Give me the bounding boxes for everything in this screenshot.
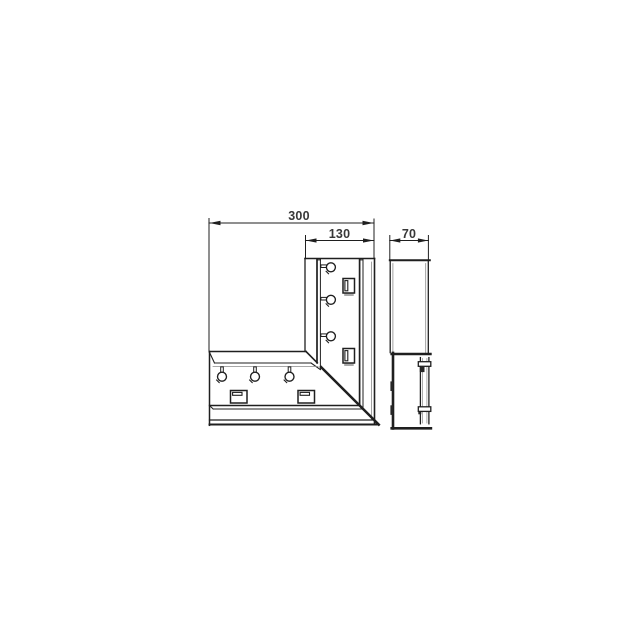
rail-clip-bar (418, 362, 431, 367)
flange-left-bevel (210, 406, 213, 409)
pin-head (326, 263, 335, 272)
retaining-pins-vertical (321, 263, 336, 343)
dimension-label-overall-length: 300 (288, 209, 309, 223)
retaining-pin (321, 263, 336, 274)
mounting-clip (343, 279, 355, 297)
dimension-label-depth: 70 (402, 227, 416, 241)
front-view (210, 259, 379, 426)
arrowhead-right (363, 238, 374, 242)
retaining-pin (321, 295, 336, 306)
retaining-pin (217, 367, 227, 383)
clip-slot (233, 392, 242, 395)
mounting-clips-horizontal (231, 391, 315, 404)
arrowhead-right (363, 221, 374, 225)
vertical-arm (305, 259, 375, 423)
pin-head (251, 372, 260, 381)
pin-stem (221, 367, 224, 372)
horizontal-arm-top-flange (210, 352, 321, 370)
pin-stem (321, 265, 327, 268)
pin-head (285, 372, 294, 381)
drawing-canvas: 300 130 70 (0, 0, 640, 640)
mounting-clip (298, 391, 315, 404)
dimension-depth: 70 (390, 227, 429, 260)
clip-slot (345, 351, 348, 361)
arrowhead-left (390, 238, 400, 242)
arrowhead-left (209, 221, 220, 225)
retaining-pin (321, 332, 336, 343)
retaining-pin (250, 367, 260, 383)
arrowhead-right (418, 238, 428, 242)
pin-stem (321, 334, 327, 337)
side-view-rail (418, 358, 431, 424)
dimension-arm-width: 130 (306, 227, 375, 258)
flange-corner-chamfer-outer (306, 352, 317, 363)
rail-clip-block (420, 367, 425, 372)
retaining-pin (284, 367, 294, 383)
rail-clip-bar (418, 407, 431, 412)
pin-stem (321, 297, 327, 300)
vertical-arm-left-flange (317, 260, 320, 370)
pin-head (326, 332, 335, 341)
side-view-lower-section (390, 353, 431, 429)
pin-stem (288, 367, 291, 372)
dimension-label-arm-width: 130 (329, 227, 350, 241)
pin-stem (254, 367, 257, 372)
pin-head (326, 295, 335, 304)
rail-clip-nub (418, 412, 421, 414)
mounting-clip (343, 349, 355, 367)
left-edge-nub (390, 405, 393, 415)
mounting-clips-vertical (343, 279, 355, 367)
clip-shadow-below (344, 294, 354, 296)
arrowhead-left (306, 238, 317, 242)
pin-head (218, 372, 227, 381)
side-view-upper-section (390, 260, 430, 352)
horizontal-arm-bottom-flange (210, 406, 379, 425)
clip-slot (300, 392, 309, 395)
clip-slot (345, 281, 348, 291)
left-edge-nub (390, 381, 393, 391)
flange-left-bevel (210, 353, 215, 363)
retaining-pins-horizontal (217, 367, 294, 383)
clip-shadow-below (344, 364, 354, 366)
technical-drawing: 300 130 70 (0, 0, 640, 640)
mounting-clip (231, 391, 248, 404)
vertical-arm-right-flange (360, 260, 363, 409)
side-view (390, 260, 431, 428)
miter-seam (321, 367, 379, 425)
